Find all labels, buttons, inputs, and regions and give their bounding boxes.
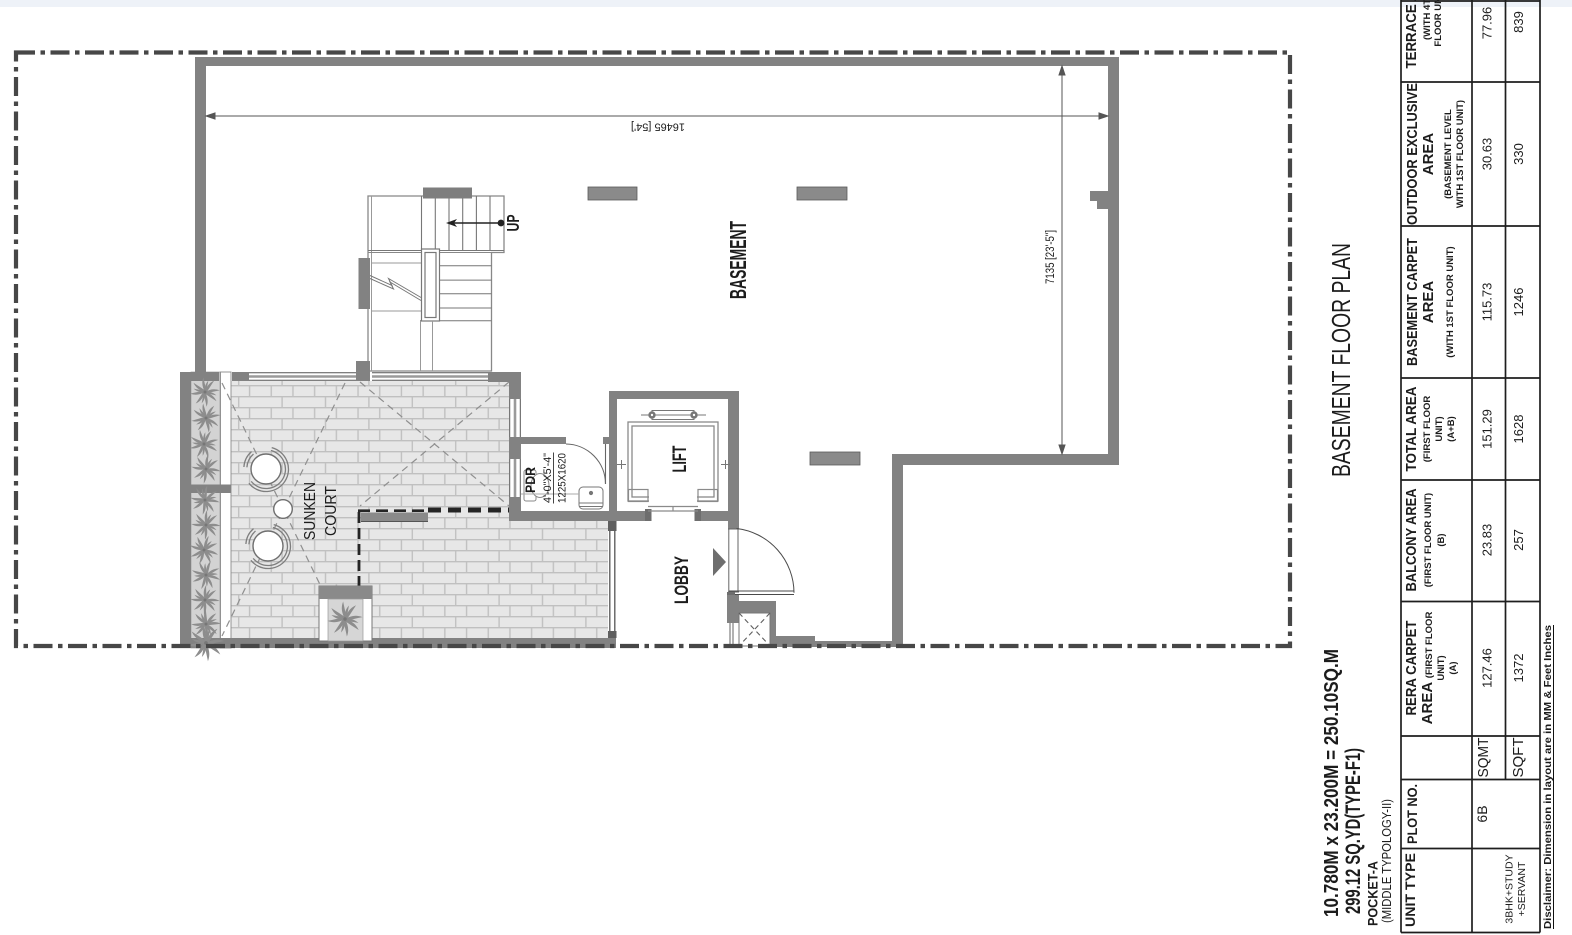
svg-text:BASEMENT FLOOR PLAN: BASEMENT FLOOR PLAN (1326, 243, 1356, 477)
svg-text:(A): (A) (1448, 661, 1459, 674)
svg-text:PDR: PDR (522, 467, 538, 493)
svg-text:TERRACE AREA: TERRACE AREA (1403, 0, 1420, 69)
svg-text:257: 257 (1511, 529, 1526, 551)
svg-text:LIFT: LIFT (670, 445, 691, 472)
svg-text:(B): (B) (1436, 533, 1447, 546)
svg-text:330: 330 (1511, 143, 1526, 165)
svg-text:(FIRST FLOOR UNIT): (FIRST FLOOR UNIT) (1423, 493, 1434, 587)
svg-text:(WITH 4TH: (WITH 4TH (1422, 0, 1433, 40)
svg-text:10.780M x 23.200M = 250.10SQ.M: 10.780M x 23.200M = 250.10SQ.M (1321, 649, 1343, 917)
svg-text:(A+B): (A+B) (1446, 416, 1457, 442)
svg-text:3BHK+STUDY: 3BHK+STUDY (1504, 854, 1516, 923)
svg-text:BALCONY AREA: BALCONY AREA (1403, 488, 1420, 591)
svg-text:30.63: 30.63 (1480, 138, 1495, 171)
svg-text:299.12 SQ.YD(TYPE-F1): 299.12 SQ.YD(TYPE-F1) (1342, 748, 1365, 914)
svg-text:115.73: 115.73 (1480, 283, 1495, 322)
svg-text:1225X1620: 1225X1620 (557, 453, 569, 503)
svg-text:PLOT NO.: PLOT NO. (1404, 784, 1420, 844)
svg-text:AREA: AREA (1420, 281, 1437, 324)
svg-text:77.96: 77.96 (1480, 7, 1495, 40)
svg-text:SUNKEN: SUNKEN (302, 482, 319, 540)
svg-text:127.46: 127.46 (1480, 648, 1495, 688)
svg-text:(BASEMENT LEVEL: (BASEMENT LEVEL (1443, 109, 1454, 199)
svg-text:1372: 1372 (1511, 654, 1526, 683)
svg-text:COURT: COURT (323, 486, 340, 536)
svg-text:LOBBY: LOBBY (672, 556, 693, 604)
svg-text:UNIT TYPE: UNIT TYPE (1402, 853, 1418, 927)
svg-text:BASEMENT: BASEMENT (725, 221, 751, 299)
svg-text:RERA CARPET: RERA CARPET (1403, 621, 1420, 716)
svg-text:1246: 1246 (1511, 288, 1526, 317)
svg-text:6B: 6B (1474, 805, 1490, 822)
svg-text:839: 839 (1511, 11, 1526, 33)
svg-text:WITH 1ST FLOOR UNIT): WITH 1ST FLOOR UNIT) (1455, 100, 1466, 208)
svg-text:BASEMENT CARPET: BASEMENT CARPET (1404, 238, 1421, 366)
svg-text:AREA: AREA (1420, 133, 1437, 176)
svg-text:UNIT): UNIT) (1436, 655, 1447, 680)
svg-text:TOTAL AREA: TOTAL AREA (1403, 386, 1420, 471)
svg-text:OUTDOOR EXCLUSIVE: OUTDOOR EXCLUSIVE (1404, 83, 1421, 225)
svg-text:FLOOR UNIT): FLOOR UNIT) (1433, 0, 1444, 47)
svg-text:1628: 1628 (1511, 415, 1526, 444)
svg-text:UNIT): UNIT) (1434, 416, 1445, 441)
svg-text:SQMT: SQMT (1476, 737, 1492, 777)
svg-text:(WITH 1ST FLOOR UNIT): (WITH 1ST FLOOR UNIT) (1445, 246, 1456, 357)
svg-text:7135 [23'-5"]: 7135 [23'-5"] (1045, 230, 1057, 284)
svg-text:SQFT: SQFT (1511, 737, 1527, 777)
svg-text:151.29: 151.29 (1480, 409, 1495, 449)
svg-text:UP: UP (503, 214, 523, 231)
svg-text:+SERVANT: +SERVANT (1516, 861, 1528, 916)
svg-text:4'-0"X5'-4": 4'-0"X5'-4" (542, 453, 554, 503)
svg-text:16465 [54']: 16465 [54'] (631, 121, 685, 133)
svg-text:Disclaimer: Dimension in layou: Disclaimer: Dimension in layout are in M… (1543, 625, 1554, 929)
svg-text:(FIRST FLOOR: (FIRST FLOOR (1422, 396, 1433, 463)
svg-text:(MIDDLE TYPOLOGY-II): (MIDDLE TYPOLOGY-II) (1379, 799, 1394, 923)
svg-text:23.83: 23.83 (1480, 524, 1495, 557)
